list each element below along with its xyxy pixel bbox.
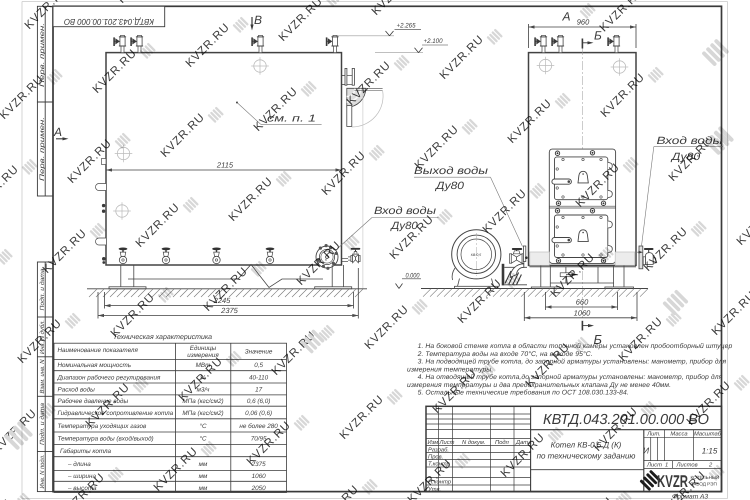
svg-text:Пров.: Пров. [428,454,443,460]
svg-text:мм: мм [199,461,208,468]
svg-text:В: В [254,13,262,27]
svg-text:960: 960 [577,18,590,27]
svg-text:0,06 (0,6): 0,06 (0,6) [245,410,272,417]
svg-text:3. На подводящей трубе котла,: 3. На подводящей трубе котла, до запорно… [418,358,727,366]
svg-text:Расход воды: Расход воды [58,387,96,394]
svg-text:Значение: Значение [245,349,273,356]
svg-text:Листов: Листов [676,462,698,468]
svg-text:Габариты котла: Габариты котла [60,448,112,455]
svg-text:не более 280: не более 280 [239,423,278,430]
svg-text:N докум.: N докум. [462,439,485,446]
svg-text:Подп. и дата: Подп. и дата [39,268,46,311]
svg-text:Подп: Подп [495,439,510,446]
svg-text:1060: 1060 [574,308,592,317]
svg-text:1060: 1060 [252,473,267,480]
svg-text:°С: °С [199,436,207,443]
svg-text:40-110: 40-110 [249,375,269,382]
svg-text:2115: 2115 [216,161,234,170]
svg-text:1: 1 [665,462,668,468]
svg-text:Гидравлическое сопротивление к: Гидравлическое сопротивление котла [58,410,174,417]
svg-text:А: А [561,10,570,24]
svg-text:Разраб.: Разраб. [428,446,449,453]
svg-text:мм: мм [199,485,208,492]
svg-text:17: 17 [255,387,263,394]
svg-text:Техническая характеристика: Техническая характеристика [113,334,212,341]
svg-text:Взам. инв. N: Взам. инв. N [39,359,46,394]
svg-text:по техническому заданию: по техническому заданию [537,452,636,461]
svg-text:мм: мм [199,473,208,480]
svg-text:Ду80: Ду80 [435,180,464,192]
svg-text:КВТД.043.201.00.000 ВО: КВТД.043.201.00.000 ВО [64,17,154,27]
svg-text:+2.100: +2.100 [424,38,443,45]
svg-text:Перв. примен.: Перв. примен. [39,117,46,181]
svg-text:МПа (кгс/см2): МПа (кгс/см2) [182,410,223,417]
svg-text:+2.265: +2.265 [397,23,416,30]
svg-text:– длина: – длина [67,461,91,468]
svg-text:660: 660 [576,298,589,307]
svg-text:°С: °С [199,423,207,430]
svg-text:Температура воды (вход/выход): Температура воды (вход/выход) [58,436,154,443]
svg-text:И: И [643,446,650,456]
svg-text:Лист: Лист [439,440,455,446]
svg-text:Изм: Изм [428,440,439,446]
svg-text:А: А [53,125,62,139]
svg-text:Диапазон рабочего регулировани: Диапазон рабочего регулирования [57,375,161,382]
svg-text:0.000: 0.000 [406,273,420,280]
svg-text:1:15: 1:15 [702,447,718,456]
svg-text:0,6 (6,0): 0,6 (6,0) [247,398,270,405]
svg-text:Масштаб: Масштаб [694,431,722,438]
svg-text:Инв. N подл.: Инв. N подл. [39,455,46,489]
svg-text:Температура уходящих газов: Температура уходящих газов [58,423,147,430]
svg-text:Единицы: Единицы [190,345,217,352]
svg-text:Номинальная мощность: Номинальная мощность [58,362,132,369]
svg-text:Наименование показателя: Наименование показателя [58,347,139,354]
svg-text:0,5: 0,5 [254,362,263,369]
svg-text:Лист: Лист [646,462,662,468]
svg-text:Лит.: Лит. [646,432,661,438]
svg-text:КВ-0,5: КВ-0,5 [471,253,481,257]
svg-text:2050: 2050 [251,485,267,492]
svg-text:2375: 2375 [220,306,239,315]
svg-text:Б: Б [594,29,602,43]
svg-text:Масса: Масса [670,432,688,438]
